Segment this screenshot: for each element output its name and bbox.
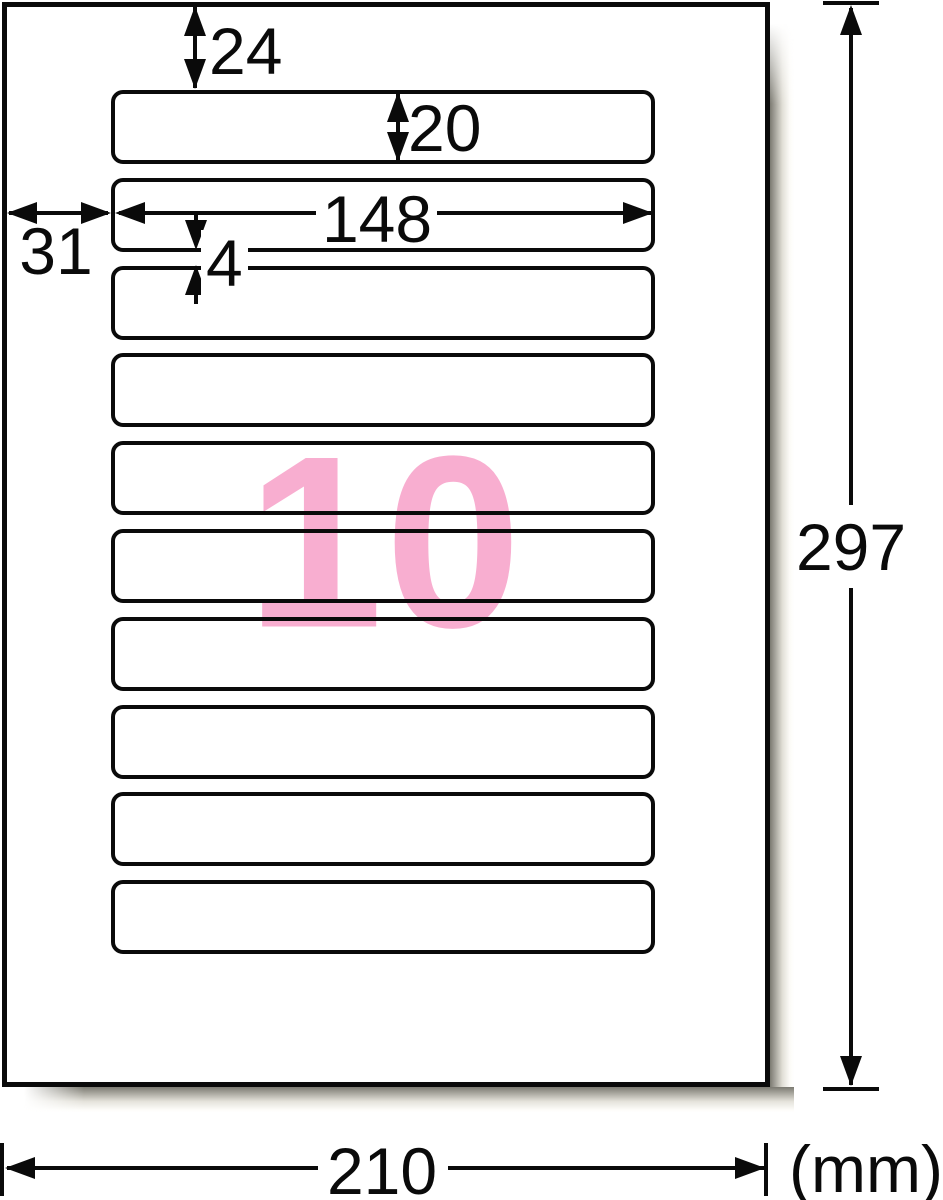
arrow-right-icon: [735, 1157, 765, 1179]
dim-sheet-width-tick: [764, 1143, 768, 1196]
dim-label-width-line: [119, 211, 316, 215]
arrow-left-icon: [115, 202, 145, 224]
dim-sheet-width-value: 210: [327, 1138, 437, 1200]
arrow-down-icon: [840, 1056, 862, 1086]
dim-sheet-height-line: [849, 8, 853, 505]
unit-label: (mm): [789, 1136, 943, 1200]
dim-label-width-line: [437, 211, 651, 215]
label-row: [111, 441, 655, 515]
label-row: [111, 90, 655, 164]
arrow-down-icon: [184, 59, 206, 89]
dim-row-gap-line: [194, 288, 198, 304]
arrow-up-icon: [387, 92, 409, 122]
dim-top-margin-value: 24: [209, 18, 282, 84]
dim-sheet-height-line: [849, 588, 853, 1085]
label-row: [111, 792, 655, 866]
label-row: [111, 353, 655, 427]
dim-row-gap-value: 4: [201, 230, 248, 296]
dim-sheet-width-line: [7, 1166, 318, 1170]
page-curl-shadow-bottom: [24, 1087, 794, 1113]
label-sheet-diagram: 10 24 20 148 31 4 297 210 (mm): [0, 0, 943, 1200]
label-row: [111, 617, 655, 691]
arrow-up-icon: [184, 6, 206, 36]
label-row: [111, 705, 655, 779]
label-row: [111, 880, 655, 954]
dim-sheet-height-tick: [823, 1087, 879, 1091]
arrow-right-icon: [623, 202, 653, 224]
dim-sheet-width-line: [448, 1166, 764, 1170]
arrow-down-icon: [387, 132, 409, 162]
label-row: [111, 529, 655, 603]
dim-sheet-height-value: 297: [796, 514, 906, 580]
dim-label-height-value: 20: [408, 95, 481, 161]
dim-label-width-value: 148: [322, 186, 432, 252]
page-curl-shadow-right: [770, 24, 794, 1087]
dim-sheet-width-tick: [0, 1143, 4, 1196]
dim-left-margin-value: 31: [19, 218, 92, 284]
